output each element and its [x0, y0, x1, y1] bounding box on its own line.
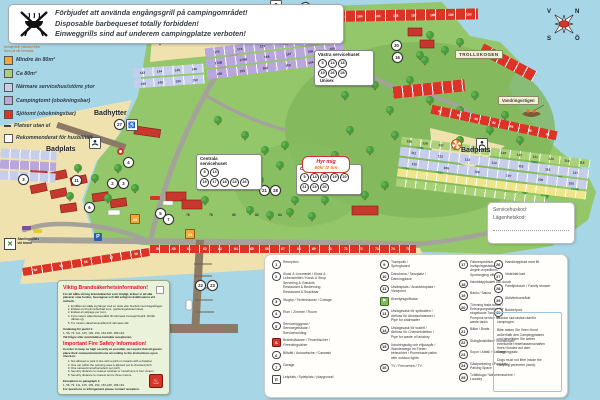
dog-rule-paragraph: Dogs must not litter inside the camping …	[497, 358, 558, 367]
fire-footer-sv: Vid frågor eller överträdelse kontakta r…	[63, 335, 164, 339]
legend-item: 11 Utsiktsplats / Aussichtsplatz / Viewp…	[380, 285, 456, 294]
facility-number: 26	[240, 178, 249, 187]
service-house-title: Centrala servicehuset	[200, 157, 258, 167]
legend-number-badge: 16	[380, 364, 389, 373]
plot-number: 118	[579, 161, 585, 165]
marker-number: 2	[111, 181, 113, 186]
plot-number: 108	[474, 169, 480, 173]
legend-label: Stugby / Ferienhäuser / Cottage	[283, 298, 332, 302]
size-legend-item: Rekommenderat för husbil/tält	[4, 134, 164, 143]
plot-number: 71	[344, 247, 348, 251]
plot-number: 120	[548, 157, 554, 161]
plot-number: 145	[174, 68, 180, 72]
plot-number: 170B	[239, 57, 247, 62]
legend-label: Garage	[283, 363, 294, 367]
marker-number: 11	[74, 178, 79, 183]
legend-item: 3 Stugby / Ferienhäuser / Cottage	[272, 298, 376, 307]
legend-item: 7 Garage	[272, 363, 376, 372]
marker-number: 5	[159, 211, 161, 216]
facility-number: 19	[330, 173, 339, 182]
fire-rules-sv: Ej tillåtet att ställa sig längst med en…	[71, 305, 164, 325]
color-swatch	[4, 125, 11, 127]
legend-number-badge: 5	[272, 322, 281, 331]
plot-number: 190	[466, 12, 471, 16]
plot-number: 121	[532, 155, 538, 159]
legend-number-badge: 22	[459, 339, 468, 348]
plot-number: 152	[193, 78, 199, 82]
plot-number: 115	[518, 164, 524, 168]
legend-item: 2 Kiosk & Livsmedel / Kiosk & Lebensmitt…	[272, 272, 376, 294]
color-swatch	[4, 110, 13, 119]
legend-label: Brandsläckare / Feuerlöscher / Fireextin…	[283, 338, 330, 347]
marker-number: 6	[88, 205, 90, 210]
color-swatch	[4, 134, 13, 143]
plot-number: 166	[307, 49, 313, 53]
legend-number-badge: 13	[380, 309, 389, 318]
legend-number-badge: 1	[272, 260, 281, 269]
compass-rose: N V S Ö	[544, 6, 584, 42]
rental-speech-bubble: Hyr mig 60kr /2 tim	[302, 156, 350, 173]
checkbox-decoration	[156, 286, 164, 294]
facility-marker: 30	[391, 40, 402, 51]
plot-number: 72	[359, 247, 363, 251]
plot-number: 189	[448, 12, 453, 16]
plot-number: 184	[357, 14, 362, 18]
marker-number: 24	[133, 217, 137, 222]
legend-number-badge: 18	[459, 280, 468, 289]
legend-label: Aktivitetsområde	[505, 296, 530, 300]
facility-number: 14	[210, 168, 219, 177]
legend-number-badge: 23	[459, 350, 468, 359]
plot-number: 116	[545, 167, 551, 171]
plot-number: 110	[412, 162, 418, 166]
facility-marker: 23	[207, 280, 218, 291]
legend-number-badge: 9	[380, 260, 389, 269]
facility-number: 24	[230, 178, 239, 187]
legend-label: TV / Fernsehen / TV	[391, 364, 422, 368]
plot-number: 173	[259, 44, 265, 48]
legend-number-badge: 7	[272, 363, 281, 372]
plot-number: 117	[572, 170, 578, 174]
facility-marker: 4	[123, 157, 134, 168]
legend-label: Båtar / Boats	[470, 327, 489, 331]
legend-number-badge: 24	[459, 362, 468, 371]
legend-item: ⚑ Äventyrsgolfbana	[380, 297, 456, 306]
legend-number-badge: 27	[494, 272, 503, 281]
plot-number: 122	[517, 153, 523, 157]
plot-number: 119	[564, 159, 570, 163]
label-trollskogen: TROLLSKOGEN	[455, 50, 503, 59]
plot-number: 175	[214, 49, 220, 53]
facility-number: 15	[320, 173, 329, 182]
code-note-box: Servicehuskod: Lägenhetskod:	[487, 202, 575, 244]
facility-number: 15	[200, 178, 209, 187]
size-legend-item: Campingtomt (obokningsbar)	[4, 96, 164, 105]
fire-heading-sv: Viktig Brandsäkerhetsinformation!	[63, 285, 164, 291]
size-legend-label: Platser utan el	[14, 123, 50, 129]
p-letter: P	[96, 234, 100, 240]
plot-number: 127	[438, 143, 444, 147]
plot-number: 94	[510, 124, 514, 128]
size-legend-label: Campingtomt (obokningsbar)	[16, 98, 90, 104]
legend-item: 6 Biltvätt / Autowäsche / Carwash	[272, 351, 376, 360]
plot-number: 146	[192, 67, 198, 71]
size-legend-item: Mindre än 80m²	[4, 56, 164, 65]
facility-number: 21	[300, 183, 309, 192]
lifebuoy-icon	[117, 148, 124, 155]
legend-item: 5 Servicebyggnad / Servicegebäude / Serv…	[272, 322, 376, 335]
legend-item: 16 TV / Fernsehen / TV	[380, 364, 456, 373]
plot-number: 55	[59, 264, 63, 268]
facility-legend-col-1: 1 Reception 2 Kiosk & Livsmedel / Kiosk …	[272, 260, 376, 387]
size-legend-item: Närmare servicehus/större ytor	[4, 83, 164, 92]
legend-item: 1 Reception	[272, 260, 376, 269]
legend-number-badge: 29	[494, 296, 503, 305]
legend-item: 28 Familjedusch / Family shower	[494, 284, 562, 293]
legend-number-badge: 17	[459, 260, 468, 269]
apartment-code-label: Lägenhetskod:	[493, 215, 569, 223]
facility-number: 26	[328, 69, 337, 78]
legend-number-badge: 26	[494, 260, 503, 269]
fire-safety-box: Viktig Brandsäkerhetsinformation! För at…	[57, 280, 170, 395]
compass-n: N	[575, 9, 579, 15]
legend-label: Servicebyggnad / Servicegebäude / Servic…	[283, 322, 310, 335]
legend-label: Utslagsvask för toalett / Abfluss für Ch…	[391, 326, 434, 339]
marker-number: 7	[167, 217, 169, 222]
facility-number: 18	[338, 59, 347, 68]
facility-number: 14	[328, 59, 337, 68]
plot-number: 114	[491, 160, 497, 164]
plot-number: 129	[406, 139, 412, 143]
legend-item: 4 Rum / Zimmer / Room	[272, 310, 376, 319]
legend-number-badge: 25	[459, 373, 468, 382]
pitch-size-legend: Detaljerade platsstorlekar finns på vår …	[4, 46, 164, 147]
legend-label: Handikappbad med lift	[505, 260, 539, 264]
legend-number-badge: 20	[459, 303, 468, 312]
facility-marker: 6	[84, 202, 95, 213]
plot-number: 186	[393, 13, 398, 17]
size-legend-item: Platser utan el	[4, 123, 164, 129]
facility-number: 20	[340, 173, 349, 182]
fire-rule: Tre meters säkerhetsavstånd till närmast…	[71, 322, 164, 325]
plot-number: 58	[134, 252, 138, 256]
plot-number: 70	[328, 247, 332, 251]
plot-number: 92	[492, 120, 496, 124]
legend-item: 14 Utslagsvask för toalett / Abfluss für…	[380, 326, 456, 339]
service-house-title: Västra servicehuset	[318, 53, 370, 58]
legend-number-badge: 6	[272, 351, 281, 360]
plot-number: 84	[278, 213, 282, 217]
dog-rule-paragraph: Bitte rasten Sie Ihren Hund außerhalb de…	[497, 328, 558, 355]
legend-label: Bastu / Sauna	[470, 291, 491, 295]
facility-number: 24	[310, 183, 319, 192]
plot-number: 75	[406, 247, 410, 251]
legend-number-badge: 21	[459, 327, 468, 336]
marker-number: 3	[22, 177, 24, 182]
servicehouse-code-label: Servicehuskod:	[493, 207, 569, 215]
legend-label: Lekplats / Spielplatz / playground	[283, 375, 333, 379]
legend-label: Reception	[283, 260, 298, 264]
fire-icon: ♨	[149, 374, 163, 388]
plot-number: 161	[239, 68, 245, 72]
legend-item: 27 Vedeldat bad	[494, 272, 562, 281]
unisex-label: Unisex	[320, 78, 370, 83]
facility-number: 5	[318, 59, 327, 68]
facility-number: 17	[210, 178, 219, 187]
dog-rules-box: Hundar ska rastas utanför campingen.Bitt…	[493, 312, 562, 392]
size-legend-label: Sjötomt (obokningsbar)	[16, 111, 76, 117]
plot-number: 69	[312, 247, 316, 251]
legend-item: 9 Trampolin / Springboard	[380, 260, 456, 269]
plot-number: 64	[234, 247, 238, 251]
plot-number: 60	[172, 247, 176, 251]
legend-item: π Lekplats / Spielplatz / playground	[272, 375, 376, 384]
size-legend-note: Detaljerade platsstorlekar finns på vår …	[4, 46, 164, 54]
plot-number: 98	[545, 132, 549, 136]
legend-item: 26 Handikappbad med lift	[494, 260, 562, 269]
legend-item: ♨ Brandsläckare / Feuerlöscher / Fireext…	[272, 338, 376, 347]
plot-number: 68	[297, 247, 301, 251]
facility-legend-col-2: 9 Trampolin / Springboard 10 Dansbana / …	[380, 260, 456, 376]
legend-number-badge: ♨	[272, 338, 281, 347]
fire-heading-en: Important Fire Safety Information!	[63, 341, 164, 347]
plot-number: 112	[438, 154, 444, 158]
legend-number-badge: 4	[272, 310, 281, 319]
facility-number: 26	[320, 183, 329, 192]
size-legend-label: Rekommenderat för husbil/tält	[16, 135, 93, 141]
plot-number: 76	[186, 213, 190, 217]
legend-item: 13 Utslagsvask för spillvatten / Abfluss…	[380, 309, 456, 322]
facility-number: 18	[220, 178, 229, 187]
plot-number: 65	[250, 247, 254, 251]
label-vandringsstigen: Vandringsstigen	[498, 96, 539, 105]
marker-number: 21	[262, 188, 267, 193]
legend-number-badge: 28	[494, 284, 503, 293]
facility-number: 28	[338, 69, 347, 78]
color-swatch	[4, 83, 13, 92]
plot-number: 61	[187, 247, 191, 251]
plot-number: 67	[281, 247, 285, 251]
legend-number-badge: π	[272, 375, 281, 384]
write-in-line	[493, 230, 569, 231]
legend-label: Vedeldat bad	[505, 272, 525, 276]
size-legend-item: Sjötomt (obokningsbar)	[4, 110, 164, 119]
camping-map: 181182183184185186187188189190 175174173…	[0, 0, 600, 400]
color-swatch	[4, 69, 13, 78]
plot-number: 167	[285, 52, 291, 56]
compass-s: S	[547, 36, 551, 42]
facility-marker: 7	[163, 214, 174, 225]
warning-line-en: Disposable barbequeset totally forbidden…	[55, 19, 248, 29]
plot-number: 188	[430, 13, 435, 17]
plot-number: 162	[262, 66, 268, 70]
marker-number: 22	[198, 283, 203, 288]
plot-number: 187	[411, 13, 416, 17]
assembly-flag-icon: ✕	[4, 238, 16, 250]
plot-number: 163	[285, 63, 291, 67]
parking-marker: 24	[185, 229, 195, 239]
fire-intro-sv: För att hålla så hög brandsäkerhet som m…	[63, 293, 164, 304]
plot-number: 57	[109, 256, 113, 260]
plot-number: 86	[438, 109, 442, 113]
facility-marker: 3	[18, 174, 29, 185]
facility-legend-panel: 1 Reception 2 Kiosk & Livsmedel / Kiosk …	[264, 254, 568, 398]
legend-number-badge: ⚑	[380, 297, 389, 306]
plot-number: 106	[537, 177, 543, 181]
plot-number: 105	[569, 181, 575, 185]
legend-item: 29 Aktivitetsområde	[494, 296, 562, 305]
plot-number: 128	[422, 141, 428, 145]
legend-number-badge: 15	[380, 343, 389, 352]
assembly-label: Samlingsplats vid brand	[18, 238, 40, 246]
facility-marker: 28	[270, 185, 281, 196]
facility-number: 19	[318, 69, 327, 78]
no-grill-icon	[17, 9, 51, 39]
plot-number: 90	[474, 116, 478, 120]
shore-plot-strip: 5960616263646566676869707172737475	[150, 245, 416, 253]
plot-number: 160	[216, 71, 222, 75]
legend-label: Trampolin / Springboard	[391, 260, 410, 269]
plot-number: 82	[255, 213, 259, 217]
plot-number: 150	[175, 79, 181, 83]
parking-marker: 24	[130, 214, 140, 224]
mid-plot-numbers: 7678808284	[186, 213, 282, 217]
service-house-vastra: Västra servicehuset 51418 192628 Unisex	[314, 50, 374, 86]
plot-number: 62	[203, 247, 207, 251]
plot-number: 96	[528, 128, 532, 132]
plot-number: 88	[456, 113, 460, 117]
plot-number: 172B	[215, 60, 223, 65]
plot-number: 63	[219, 247, 223, 251]
plot-number: 80	[232, 213, 236, 217]
plot-number: 185	[375, 14, 380, 18]
facility-number: 5	[200, 168, 209, 177]
compass-e: Ö	[575, 35, 580, 42]
plot-number: 164	[308, 60, 314, 64]
legend-number-badge: 2	[272, 272, 281, 281]
legend-number-badge: 11	[380, 285, 389, 294]
fire-intro-en: In order to keep as high security as pos…	[63, 348, 164, 359]
disposable-grill-warning: Förbjudet att använda engångsgrill på ca…	[8, 4, 344, 44]
size-legend-label: Ca 80m²	[16, 71, 37, 77]
parking-icon: P	[94, 233, 102, 241]
legend-label: Utslagsvask för spillvatten / Abfluss fü…	[391, 309, 435, 322]
plot-number: 113	[464, 157, 470, 161]
marker-number: 28	[273, 188, 278, 193]
plot-number: 107	[506, 173, 512, 177]
facility-marker: 3	[118, 178, 129, 189]
compass-w: V	[547, 9, 551, 15]
legend-label: Dansbana / Tanzplatz / Dancingplace	[391, 272, 426, 281]
facility-marker: 2	[107, 178, 118, 189]
facility-marker: 22	[195, 280, 206, 291]
service-house-centrala: Centrala servicehuset 514 1517182426	[196, 154, 262, 190]
marker-number: 4	[127, 160, 129, 165]
legend-label: Kiosk & Livsmedel / Kiosk & Lebensmittel…	[283, 272, 326, 294]
legend-label: Vandringsstig och elljusspår / Wanderweg…	[391, 343, 437, 361]
dog-rule-paragraph: Hundar ska rastas utanför campingen.	[497, 316, 558, 325]
plot-number: 74	[391, 247, 395, 251]
legend-label: Utsiktsplats / Aussichtsplatz / Viewpoin…	[391, 285, 435, 294]
facility-number: 5	[300, 173, 309, 182]
legend-item: 15 Vandringsstig och elljusspår / Wander…	[380, 343, 456, 361]
legend-label: Rum / Zimmer / Room	[283, 310, 317, 314]
assembly-point: ✕ Samlingsplats vid brand	[4, 238, 39, 250]
plot-number: 123	[501, 151, 507, 155]
plot-number: 59	[156, 247, 160, 251]
facility-marker: 11	[71, 175, 82, 186]
warning-line-de: Einweggrills sind auf underem campingpla…	[55, 29, 248, 39]
legend-label: Biltvätt / Autowäsche / Carwash	[283, 351, 331, 355]
marker-number: 23	[210, 283, 215, 288]
legend-label: Äventyrsgolfbana	[391, 297, 418, 301]
legend-number-badge: 14	[380, 326, 389, 335]
legend-item: 10 Dansbana / Tanzplatz / Dancingplace	[380, 272, 456, 281]
warning-line-sv: Förbjudet att använda engångsgrill på ca…	[55, 8, 248, 18]
plot-number: 174	[236, 47, 242, 51]
facility-marker: 16	[392, 52, 403, 63]
label-badplats-right: Badplats	[461, 147, 491, 154]
color-swatch	[4, 96, 13, 105]
plot-number: 56	[84, 260, 88, 264]
plot-number: 73	[375, 247, 379, 251]
plot-number: 66	[266, 247, 270, 251]
legend-number-badge: 10	[380, 272, 389, 281]
rental-line2: 60kr /2 tim	[304, 165, 348, 170]
size-legend-label: Mindre än 80m²	[16, 57, 55, 63]
plot-number: 109	[443, 165, 449, 169]
marker-number: 3	[122, 181, 124, 186]
plot-number: 111	[411, 150, 416, 154]
plot-number: 78	[209, 213, 213, 217]
marker-number: 16	[395, 55, 400, 60]
plot-number: 54	[33, 268, 37, 272]
legend-label: Familjedusch / Family shower	[505, 284, 550, 288]
marker-number: 24	[188, 232, 192, 237]
legend-number-badge: 19	[459, 291, 468, 300]
legend-number-badge: 3	[272, 298, 281, 307]
size-legend-label: Närmare servicehus/större ytor	[16, 84, 95, 90]
color-swatch	[4, 56, 13, 65]
marker-number: 30	[394, 43, 399, 48]
plot-number: 168	[263, 54, 269, 58]
size-legend-item: Ca 80m²	[4, 69, 164, 78]
